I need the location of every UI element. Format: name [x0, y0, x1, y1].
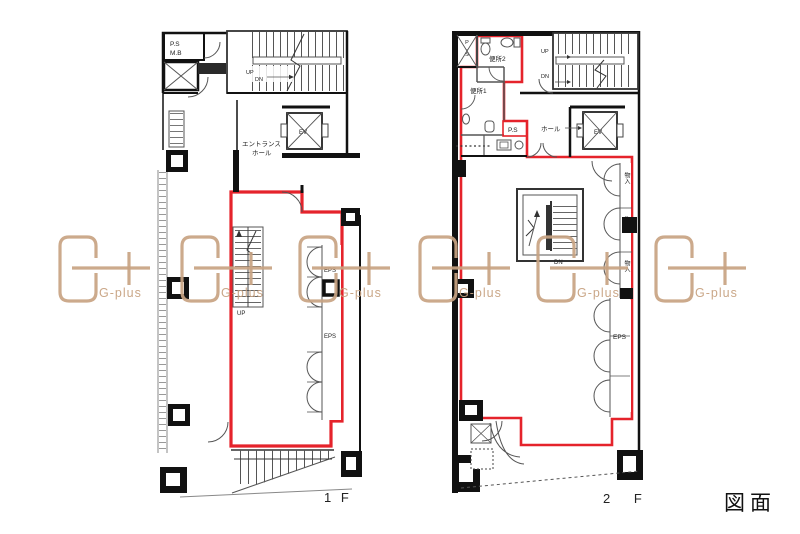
g-plus-wordmark: G-plus [577, 286, 620, 300]
duct-block-1f [198, 63, 226, 74]
meter-box-1f [169, 111, 184, 147]
toilet1-room-2f: 便所1 [461, 67, 504, 135]
closet-door-arcs [594, 300, 610, 412]
mb-label-1f: M.B [170, 50, 182, 57]
g-plus-wordmark: G-plus [221, 286, 264, 300]
ps-label-1f: P.S [170, 41, 180, 48]
eps-shaft-2f: EPS [594, 298, 631, 417]
door-arc [282, 192, 302, 212]
g-plus-wordmark: G-plus [99, 286, 142, 300]
window-strip-1f [158, 170, 167, 453]
door-arc [539, 79, 553, 93]
eps-lower-label-1f: EPS [324, 334, 336, 340]
g-plus-wordmark: G-plus [459, 286, 502, 300]
double-door-arcs [527, 143, 557, 157]
basin-icon [515, 141, 523, 149]
g-plus-logo: G-plus [656, 237, 746, 301]
g-plus-logo: G-plus [420, 237, 510, 301]
entrance-hall-1f: エントランス ホール [188, 77, 281, 192]
toilet1-label: 便所1 [470, 86, 487, 95]
ps-box-label-2f: P.S [508, 127, 518, 134]
stair-dn-label-1f: DN [255, 77, 263, 83]
inner-stair-1f: UP [233, 227, 263, 317]
g-plus-wordmark: G-plus [695, 286, 738, 300]
outer-wall-left-2f [452, 31, 458, 493]
floorplan-canvas: P.S M.B UP DN [0, 0, 800, 534]
floor-label-1f: 1 F [324, 490, 352, 505]
ground-line-2f [461, 471, 640, 488]
dashed-hatch-box [471, 449, 493, 469]
eps-shaft-1f: EPS EPS [307, 245, 341, 420]
exterior-stair-1f [231, 450, 335, 494]
hall-2f: ホール [541, 125, 582, 133]
storage3-label: 物入 [623, 259, 630, 272]
door-arc [208, 422, 228, 442]
sink-icon [463, 114, 470, 124]
elevator-2f: EV [570, 107, 625, 157]
ps-box-2f: P.S [503, 121, 527, 136]
toilet2-room-2f: 便所2 [477, 35, 520, 82]
ev-label-2f: EV [594, 130, 602, 136]
stair-dn-label-2f: DN [541, 74, 549, 80]
inner-stair-dn-label: DN [554, 260, 563, 266]
closet-door-arcs [307, 247, 322, 412]
urinal-icon [485, 121, 494, 132]
eps-label-2f: EPS [613, 334, 627, 341]
floor-label-2f: 2 F [603, 491, 652, 506]
storage1-label: 物入 [623, 171, 630, 184]
toilet-bowl-icon [481, 43, 490, 55]
entrance-label-line1: エントランス [242, 140, 281, 148]
g-plus-logo: G-plus [60, 237, 150, 301]
toilet-bowl-icon [501, 38, 513, 47]
stair-up-label-2f: UP [541, 49, 549, 55]
ev-label-1f: EV [299, 130, 307, 136]
balcony-2f [471, 421, 524, 469]
stairwell-2f-top: UP DN [539, 33, 638, 93]
curved-path-lines [490, 421, 524, 464]
washroom-2f [456, 135, 527, 156]
toilet-tank-icon [514, 38, 520, 47]
toilet2-label: 便所2 [489, 54, 506, 63]
stair-up-label-1f: UP [246, 70, 254, 76]
inner-stair-up-label: UP [237, 311, 245, 317]
door-arc [592, 161, 612, 181]
hall-label-2f: ホール [541, 125, 561, 133]
shaft-ps-1f [164, 62, 198, 90]
toilet-tank-icon [481, 38, 490, 43]
ps-shaft-label-2f: P.S [464, 40, 470, 58]
g-plus-wordmark: G-plus [339, 286, 382, 300]
stairwell-1f-top: UP DN [227, 31, 347, 93]
caption-label: 図面 [724, 492, 776, 515]
x-cross-icon [471, 424, 491, 443]
x-cross-icon [164, 62, 198, 90]
shaft-ps-2f: P.S [457, 35, 477, 67]
entrance-label-line2: ホール [252, 149, 272, 157]
